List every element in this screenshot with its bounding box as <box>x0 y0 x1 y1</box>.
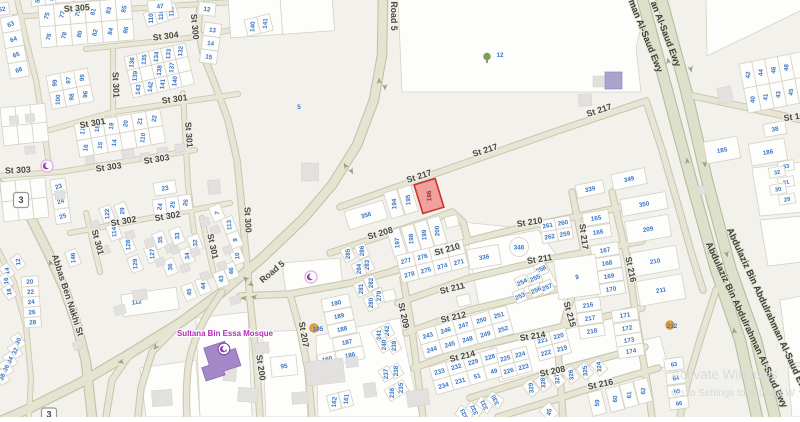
svg-text:196: 196 <box>426 190 433 201</box>
svg-text:47: 47 <box>156 3 164 11</box>
svg-text:346: 346 <box>514 245 525 252</box>
svg-text:136: 136 <box>128 56 136 68</box>
svg-text:134: 134 <box>153 51 161 63</box>
svg-text:St 300: St 300 <box>242 207 253 234</box>
svg-text:128: 128 <box>125 239 132 250</box>
svg-text:Road 5: Road 5 <box>389 1 399 30</box>
svg-text:Activate Windows: Activate Windows <box>671 367 778 382</box>
svg-text:22: 22 <box>27 289 35 297</box>
svg-text:46: 46 <box>228 267 235 275</box>
svg-text:129: 129 <box>132 258 139 269</box>
svg-text:325: 325 <box>582 365 590 377</box>
svg-text:110: 110 <box>148 13 155 24</box>
svg-text:St 301: St 301 <box>183 122 195 149</box>
svg-text:45: 45 <box>788 88 796 96</box>
svg-text:138: 138 <box>156 64 164 76</box>
svg-text:43: 43 <box>775 90 783 98</box>
svg-text:30: 30 <box>775 187 782 194</box>
svg-text:3: 3 <box>46 410 51 418</box>
svg-text:42: 42 <box>745 71 753 79</box>
svg-text:60: 60 <box>612 395 619 403</box>
svg-text:32: 32 <box>774 170 781 177</box>
svg-text:33: 33 <box>174 232 181 240</box>
svg-text:142: 142 <box>147 81 155 93</box>
svg-text:140: 140 <box>249 21 257 32</box>
svg-text:34: 34 <box>184 252 191 260</box>
svg-text:St 305: St 305 <box>64 2 91 14</box>
svg-text:12: 12 <box>203 6 211 14</box>
svg-text:113: 113 <box>226 219 233 230</box>
svg-text:32: 32 <box>192 239 199 247</box>
svg-text:28: 28 <box>29 319 37 327</box>
svg-text:3: 3 <box>18 195 23 205</box>
svg-text:198: 198 <box>408 233 415 244</box>
svg-text:162: 162 <box>331 396 339 408</box>
svg-text:137: 137 <box>168 62 176 74</box>
svg-text:10: 10 <box>234 252 241 260</box>
svg-text:200: 200 <box>434 225 441 236</box>
svg-text:235: 235 <box>398 382 405 393</box>
svg-text:141: 141 <box>262 18 270 29</box>
svg-text:99: 99 <box>51 79 59 87</box>
svg-text:26: 26 <box>28 309 36 317</box>
svg-text:95: 95 <box>79 73 87 81</box>
svg-text:329: 329 <box>528 382 536 394</box>
svg-text:43: 43 <box>218 275 225 283</box>
svg-text:143: 143 <box>135 84 143 96</box>
svg-text:284: 284 <box>356 263 363 274</box>
svg-text:199: 199 <box>421 229 428 240</box>
svg-text:140: 140 <box>171 75 179 87</box>
svg-text:62: 62 <box>640 387 647 395</box>
svg-text:127: 127 <box>149 248 156 259</box>
svg-text:12: 12 <box>15 258 23 266</box>
svg-text:96: 96 <box>82 90 90 98</box>
svg-text:281: 281 <box>358 283 365 294</box>
svg-text:324: 324 <box>596 361 604 373</box>
svg-text:194: 194 <box>391 198 398 209</box>
svg-text:135: 135 <box>141 54 149 66</box>
svg-text:237: 237 <box>383 368 390 379</box>
svg-text:45: 45 <box>186 288 193 296</box>
svg-text:97: 97 <box>65 76 73 84</box>
svg-text:44: 44 <box>757 68 765 76</box>
svg-text:239: 239 <box>391 340 398 351</box>
svg-text:24: 24 <box>28 299 36 307</box>
svg-text:St 303: St 303 <box>5 164 32 175</box>
svg-text:195: 195 <box>405 194 412 205</box>
svg-text:Sultana Bin Essa Mosque: Sultana Bin Essa Mosque <box>177 329 274 338</box>
svg-text:285: 285 <box>345 248 352 259</box>
svg-text:132: 132 <box>177 45 185 57</box>
svg-text:141: 141 <box>159 78 167 90</box>
svg-text:146: 146 <box>70 252 77 263</box>
svg-text:35: 35 <box>157 236 164 244</box>
svg-text:98: 98 <box>68 93 76 101</box>
svg-text:29: 29 <box>119 207 126 215</box>
svg-text:59: 59 <box>594 399 601 407</box>
svg-text:18: 18 <box>6 288 14 296</box>
svg-text:161: 161 <box>343 393 351 405</box>
svg-text:48: 48 <box>783 63 791 71</box>
svg-text:280: 280 <box>368 297 375 308</box>
svg-text:40: 40 <box>749 95 757 103</box>
svg-text:328: 328 <box>540 377 548 389</box>
svg-text:St 301: St 301 <box>111 72 122 98</box>
svg-text:41: 41 <box>762 93 770 101</box>
svg-text:286: 286 <box>359 245 366 256</box>
svg-text:5: 5 <box>297 104 301 111</box>
svg-text:326: 326 <box>568 369 576 381</box>
svg-text:212: 212 <box>667 323 678 330</box>
svg-text:61: 61 <box>626 391 633 399</box>
svg-text:95: 95 <box>280 363 288 371</box>
svg-text:238: 238 <box>393 365 400 376</box>
svg-text:44: 44 <box>200 282 207 290</box>
svg-text:197: 197 <box>394 237 401 248</box>
svg-text:20: 20 <box>26 278 34 286</box>
svg-text:133: 133 <box>165 48 173 60</box>
svg-text:Go to Settings to activate W: Go to Settings to activate W <box>671 388 796 399</box>
svg-text:36: 36 <box>167 263 174 271</box>
svg-text:110: 110 <box>139 132 147 144</box>
svg-text:100: 100 <box>55 94 63 105</box>
svg-text:105: 105 <box>313 326 324 333</box>
svg-text:139: 139 <box>132 70 140 82</box>
svg-text:46: 46 <box>770 66 778 74</box>
svg-text:282: 282 <box>368 277 375 288</box>
svg-text:236: 236 <box>389 387 396 398</box>
svg-text:12: 12 <box>496 52 504 59</box>
